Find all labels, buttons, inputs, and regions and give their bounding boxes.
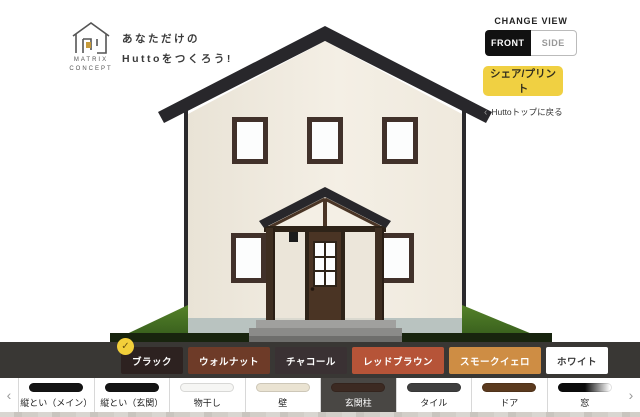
tab-tile-swatch [407, 383, 461, 392]
tab-laundry-pole[interactable]: 物干し [169, 378, 245, 412]
brand-logo: MATRIX CONCEPT [64, 20, 118, 74]
back-link-label: Huttoトップに戻る [491, 106, 562, 118]
share-print-button[interactable]: シェア/プリント [483, 66, 563, 96]
tab-door[interactable]: ドア [471, 378, 547, 412]
color-swatch-walnut[interactable]: ウォルナット [188, 347, 270, 374]
tab-downspout-main-swatch [29, 383, 83, 392]
color-swatch-charcoal[interactable]: チャコール [275, 347, 347, 374]
view-toggle: FRONT SIDE [485, 30, 577, 56]
back-to-top-link[interactable]: ‹ Huttoトップに戻る [484, 106, 563, 118]
tab-tile[interactable]: タイル [396, 378, 472, 412]
tab-wall-swatch [256, 383, 310, 392]
downspout-left [184, 110, 188, 322]
house-logo-icon [69, 20, 113, 54]
tab-door-swatch [482, 383, 536, 392]
front-view-button[interactable]: FRONT [485, 30, 531, 56]
house-configurator-app: MATRIX CONCEPT あなただけの Huttoをつくろう! CHANGE… [0, 0, 640, 417]
brand-name-line1: MATRIX [64, 56, 118, 65]
color-swatch-redbrown[interactable]: レッドブラウン [352, 347, 444, 374]
tabs-prev-chevron-icon[interactable]: ‹ [0, 378, 18, 412]
color-swatches: ブラック ウォルナット チャコール レッドブラウン スモークイェロ ホワイト [121, 347, 608, 374]
tab-entrance-pillar[interactable]: 玄関柱 [320, 378, 396, 412]
tabs-next-chevron-icon[interactable]: › [622, 378, 640, 412]
selected-check-icon: ✓ [117, 338, 134, 355]
tab-wall[interactable]: 壁 [245, 378, 321, 412]
tab-downspout-entrance[interactable]: 縦とい（玄関） [94, 378, 170, 412]
tab-window-swatch [558, 383, 612, 392]
tab-window[interactable]: 窓 [547, 378, 623, 412]
back-chevron-icon: ‹ [484, 107, 487, 118]
change-view-label: CHANGE VIEW [485, 16, 577, 26]
upper-windows [232, 117, 418, 164]
tab-laundry-pole-swatch [180, 383, 234, 392]
color-swatch-white[interactable]: ホワイト [546, 347, 608, 374]
side-view-button[interactable]: SIDE [531, 30, 578, 56]
color-swatch-smokeyellow[interactable]: スモークイェロ [449, 347, 541, 374]
tagline: あなただけの Huttoをつくろう! [122, 30, 233, 70]
tab-downspout-main[interactable]: 縦とい（メイン） [18, 378, 94, 412]
tab-entrance-pillar-swatch [331, 383, 385, 392]
part-tab-bar: ‹ 縦とい（メイン） 縦とい（玄関） 物干し 壁 玄関柱 [0, 378, 640, 417]
brand-name-line2: CONCEPT [64, 65, 118, 74]
entrance-step [249, 320, 402, 342]
downspout-right [462, 110, 466, 322]
color-option-bar: ブラック ウォルナット チャコール レッドブラウン スモークイェロ ホワイト ✓ [0, 342, 640, 378]
tab-downspout-entrance-swatch [105, 383, 159, 392]
entrance-door [305, 227, 345, 322]
texture-preview-strip [0, 412, 640, 417]
